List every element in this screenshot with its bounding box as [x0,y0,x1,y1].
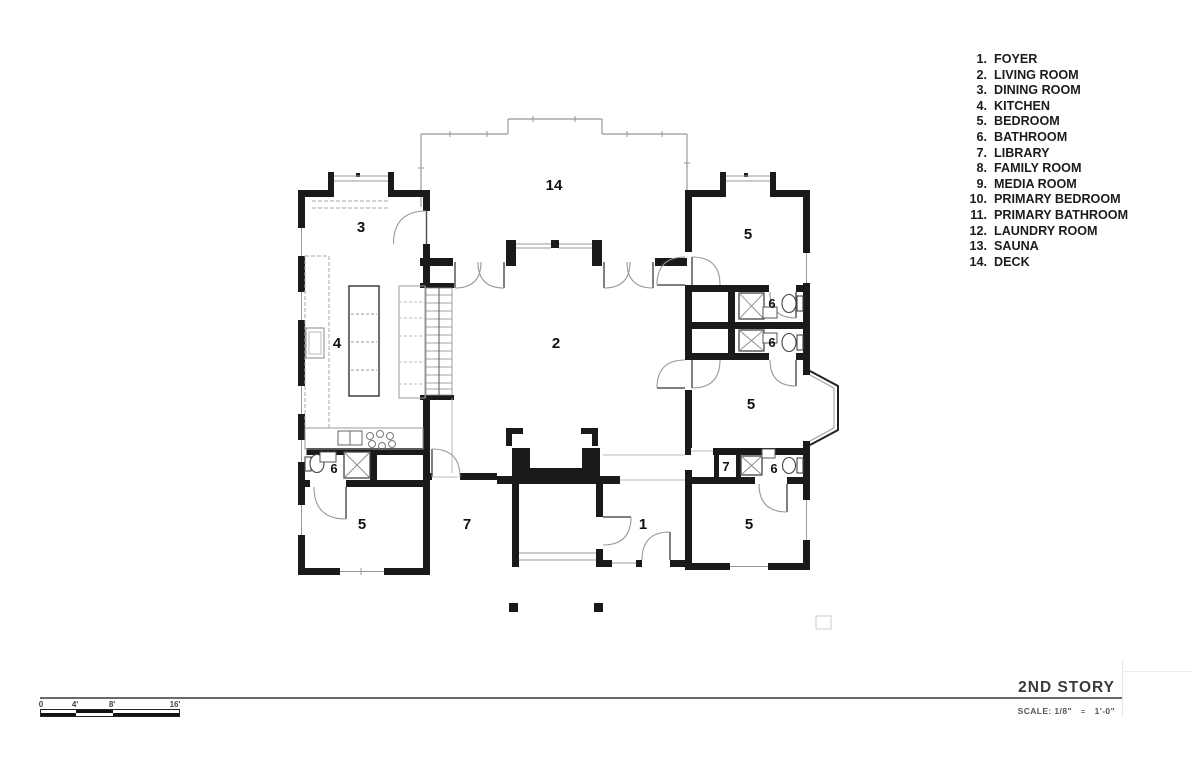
legend-label: LAUNDRY ROOM [994,224,1176,240]
legend-item: 7.LIBRARY [966,146,1176,162]
legend-item: 4.KITCHEN [966,99,1176,115]
room-legend: 1.FOYER 2.LIVING ROOM 3.DINING ROOM 4.KI… [966,52,1176,270]
legend-item: 6.BATHROOM [966,130,1176,146]
room-label-deck: 14 [546,177,563,194]
dining-closet-dashes [312,201,390,208]
legend-item: 9.MEDIA ROOM [966,177,1176,193]
legend-item: 5.BEDROOM [966,114,1176,130]
legend-number: 4. [966,99,987,115]
legend-number: 8. [966,161,987,177]
legend-number: 6. [966,130,987,146]
border-remnant-horizontal [1122,671,1192,672]
legend-item: 2.LIVING ROOM [966,68,1176,84]
legend-number: 3. [966,83,987,99]
border-remnant-vertical [1122,661,1123,717]
legend-item: 13.SAUNA [966,239,1176,255]
legend-number: 13. [966,239,987,255]
scale-tick-8: 8' [109,700,115,709]
scale-tick-16: 16' [170,700,181,709]
legend-number: 14. [966,255,987,271]
legend-number: 11. [966,208,987,224]
room-label-bedroom-e: 5 [747,396,755,413]
legend-item: 1.FOYER [966,52,1176,68]
legend-number: 1. [966,52,987,68]
room-label-foyer: 1 [639,516,647,533]
legend-label: KITCHEN [994,99,1176,115]
room-label-bath-a: 6 [768,296,775,311]
room-label-bath-se: 6 [770,461,777,476]
room-label-dining: 3 [357,219,365,236]
legend-item: 3.DINING ROOM [966,83,1176,99]
doors [314,211,796,560]
sheet-title: 2ND STORY [900,679,1115,697]
room-label-closet-7: 7 [722,459,729,474]
kitchen-island [349,286,379,396]
legend-label: SAUNA [994,239,1176,255]
scale-equals: = [1081,707,1086,716]
room-label-library: 7 [463,516,471,533]
scale-value: 1'-0" [1095,706,1115,716]
kitchen-casework [305,201,425,450]
legend-item: 12.LAUNDRY ROOM [966,224,1176,240]
room-label-kitchen: 4 [333,335,342,352]
legend-item: 10.PRIMARY BEDROOM [966,192,1176,208]
room-label-bedroom-ne: 5 [744,226,752,243]
room-label-bath-b: 6 [768,335,775,350]
cooktop-burners [367,431,396,450]
legend-label: FOYER [994,52,1176,68]
legend-number: 12. [966,224,987,240]
window-glazing [302,176,807,575]
legend-number: 2. [966,68,987,84]
legend-number: 9. [966,177,987,193]
title-underline [40,697,1122,699]
room-label-bath-w: 6 [330,461,337,476]
room-label-bedroom-se: 5 [745,516,753,533]
room-label-living: 2 [552,335,560,352]
footing-outline [816,616,831,629]
legend-label: BEDROOM [994,114,1176,130]
legend-number: 5. [966,114,987,130]
door-leaves [346,211,796,560]
graphic-scale-bar [40,709,180,717]
walls [298,172,810,575]
legend-label: LIBRARY [994,146,1176,162]
legend-label: FAMILY ROOM [994,161,1176,177]
door-arcs [314,211,796,560]
legend-label: PRIMARY BATHROOM [994,208,1176,224]
legend-label: DINING ROOM [994,83,1176,99]
drawing-sheet: 14 3 5 4 2 6 6 5 6 7 6 5 7 1 5 1.FOYER 2… [0,0,1200,777]
legend-label: LIVING ROOM [994,68,1176,84]
scale-tick-4: 4' [72,700,78,709]
legend-item: 11.PRIMARY BATHROOM [966,208,1176,224]
legend-label: PRIMARY BEDROOM [994,192,1176,208]
scale-tick-0: 0 [39,700,43,709]
legend-label: DECK [994,255,1176,271]
legend-item: 14.DECK [966,255,1176,271]
porch-columns [509,603,831,629]
legend-label: MEDIA ROOM [994,177,1176,193]
legend-number: 7. [966,146,987,162]
legend-number: 10. [966,192,987,208]
legend-label: BATHROOM [994,130,1176,146]
scale-note: SCALE: 1/8"=1'-0" [900,706,1115,716]
scale-prefix: SCALE: 1/8" [1018,706,1072,716]
room-label-bedroom-sw: 5 [358,516,366,533]
legend-item: 8.FAMILY ROOM [966,161,1176,177]
window-gaps [297,228,385,577]
bay-window [810,371,838,445]
